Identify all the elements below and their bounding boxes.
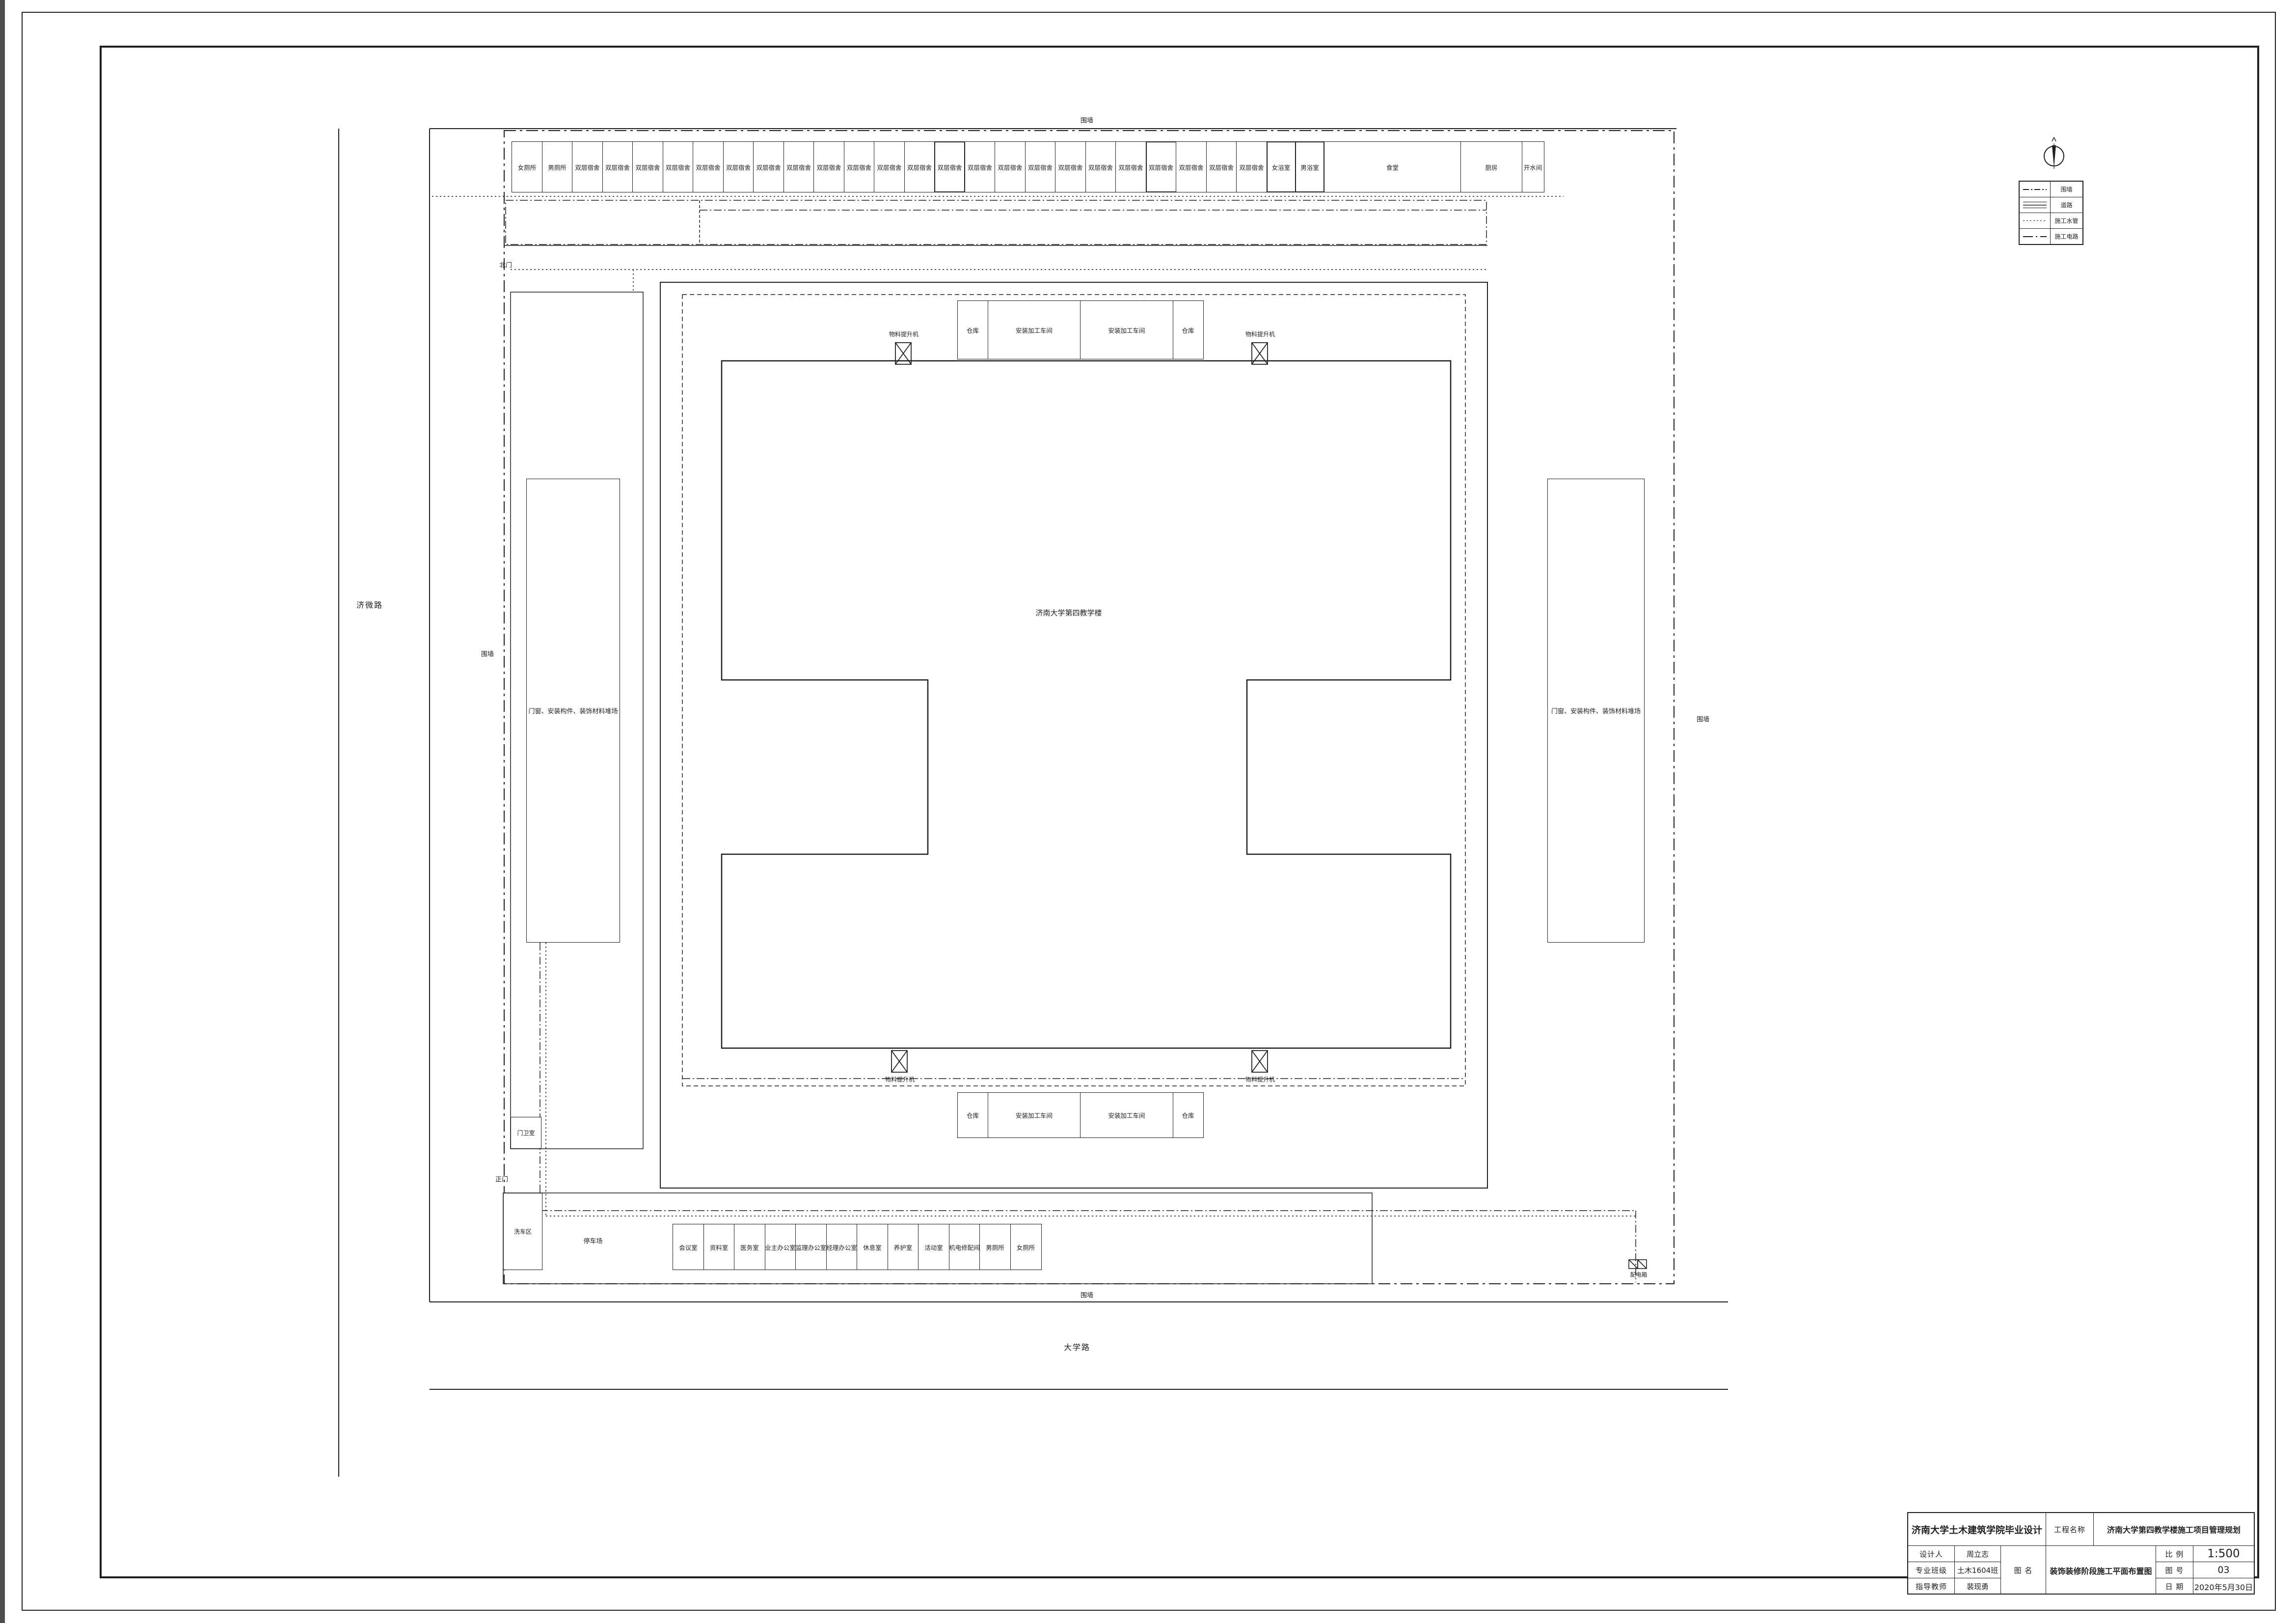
room-box: 双层宿舍 bbox=[1176, 141, 1207, 192]
room-box: 双层宿舍 bbox=[753, 141, 784, 192]
east-storage-yard: 门窗、安装构件、装饰材料堆场 bbox=[1547, 479, 1645, 943]
room-box: 双层宿舍 bbox=[602, 141, 633, 192]
west-road-label: 济微路 bbox=[356, 601, 383, 609]
box-label: 双层宿舍 bbox=[1149, 162, 1173, 172]
legend-dashdot-long-icon bbox=[2020, 229, 2051, 244]
facility-box: 安装加工车间 bbox=[988, 1092, 1081, 1138]
office-row: 会议室资料室医务室业主办公室监理办公室经理办公室休息室养护室活动室机电修配间男厕… bbox=[673, 1224, 1042, 1270]
hoist-label-top-right: 物料提升机 bbox=[1245, 331, 1275, 337]
legend-label: 围墙 bbox=[2051, 182, 2082, 197]
west-storage-yard: 门窗、安装构件、装饰材料堆场 bbox=[526, 479, 620, 943]
box-label: 双层宿舍 bbox=[1179, 162, 1203, 172]
box-label: 双层宿舍 bbox=[696, 162, 720, 172]
hoist-symbol-bottom-right bbox=[1252, 1051, 1268, 1072]
drawing-no-label: 图 号 bbox=[2156, 1562, 2193, 1578]
box-label: 双层宿舍 bbox=[1239, 162, 1264, 172]
room-box: 双层宿舍 bbox=[1025, 141, 1056, 192]
box-label: 双层宿舍 bbox=[1058, 162, 1082, 172]
power-box-label: 配电箱 bbox=[1630, 1272, 1648, 1278]
room-box: 双层宿舍 bbox=[965, 141, 996, 192]
room-box: 双层宿舍 bbox=[1146, 141, 1177, 192]
box-label: 开水间 bbox=[1524, 162, 1542, 172]
car-wash-area: 洗车区 bbox=[503, 1193, 542, 1270]
room-box: 双层宿舍 bbox=[1236, 141, 1267, 192]
drawing-no-value: 03 bbox=[2193, 1562, 2254, 1578]
hoist-symbol-bottom-left bbox=[891, 1051, 907, 1072]
legend-row: 施工水管 bbox=[2020, 213, 2082, 228]
box-label: 仓库 bbox=[967, 325, 979, 335]
room-box: 男浴室 bbox=[1295, 141, 1324, 192]
legend-label: 道路 bbox=[2051, 197, 2082, 213]
north-arrow-icon bbox=[2044, 137, 2064, 169]
title-school: 济南大学土木建筑学院毕业设计 bbox=[1908, 1513, 2046, 1546]
box-label: 女厕所 bbox=[518, 162, 537, 172]
box-label: 双层宿舍 bbox=[1088, 162, 1113, 172]
compound-top-facilities: 仓库安装加工车间安装加工车间仓库 bbox=[957, 300, 1204, 359]
room-box: 双层宿舍 bbox=[874, 141, 905, 192]
room-box: 双层宿舍 bbox=[813, 141, 844, 192]
room-box: 双层宿舍 bbox=[1085, 141, 1116, 192]
box-label: 食堂 bbox=[1386, 162, 1399, 172]
top-lane-outline bbox=[506, 200, 1486, 244]
advisor-value: 裴现勇 bbox=[1955, 1578, 2001, 1595]
hoist-label-bottom-right: 物料提升机 bbox=[1245, 1077, 1275, 1082]
fence-label-east: 围墙 bbox=[1697, 717, 1709, 723]
box-label: 男厕所 bbox=[986, 1243, 1004, 1252]
box-label: 厨房 bbox=[1485, 162, 1497, 172]
date-value: 2020年5月30日 bbox=[2193, 1578, 2254, 1595]
box-label: 男厕所 bbox=[548, 162, 567, 172]
class-label: 专业班级 bbox=[1908, 1562, 1955, 1578]
legend-row: 道路 bbox=[2020, 197, 2082, 213]
office-box: 经理办公室 bbox=[826, 1224, 858, 1270]
box-label: 仓库 bbox=[1182, 325, 1194, 335]
box-label: 会议室 bbox=[679, 1243, 698, 1252]
office-box: 会议室 bbox=[673, 1224, 704, 1270]
room-box: 双层宿舍 bbox=[844, 141, 875, 192]
box-label: 双层宿舍 bbox=[968, 162, 992, 172]
facility-box: 仓库 bbox=[1173, 300, 1204, 359]
compound-outline bbox=[660, 282, 1487, 1188]
office-box: 业主办公室 bbox=[765, 1224, 796, 1270]
power-box-icon bbox=[1629, 1260, 1647, 1269]
legend-dashdot-icon bbox=[2020, 182, 2051, 197]
inner-frame-border bbox=[101, 47, 2258, 1577]
legend-label: 施工水管 bbox=[2051, 213, 2082, 228]
room-box: 女厕所 bbox=[512, 141, 542, 192]
room-box: 双层宿舍 bbox=[934, 141, 965, 192]
drawing-name-label: 图 名 bbox=[2001, 1546, 2046, 1595]
compound-bottom-facilities: 仓库安装加工车间安装加工车间仓库 bbox=[957, 1092, 1204, 1138]
office-box: 资料室 bbox=[703, 1224, 735, 1270]
project-name-label: 工程名称 bbox=[2046, 1513, 2094, 1546]
box-label: 女浴室 bbox=[1272, 162, 1291, 172]
room-box: 双层宿舍 bbox=[572, 141, 603, 192]
box-label: 双层宿舍 bbox=[726, 162, 751, 172]
legend-dotted-icon bbox=[2020, 213, 2051, 228]
box-label: 仓库 bbox=[967, 1110, 979, 1120]
box-label: 双层宿舍 bbox=[847, 162, 871, 172]
office-box: 医务室 bbox=[734, 1224, 765, 1270]
office-box: 机电修配间 bbox=[949, 1224, 980, 1270]
south-road-label: 大学路 bbox=[1064, 1344, 1090, 1352]
box-label: 安装加工车间 bbox=[1016, 325, 1053, 335]
box-label: 经理办公室 bbox=[826, 1243, 857, 1252]
legend-label: 施工电路 bbox=[2051, 229, 2082, 244]
scale-label: 比 例 bbox=[2156, 1546, 2193, 1562]
box-label: 双层宿舍 bbox=[1209, 162, 1234, 172]
hoist-label-top-left: 物料提升机 bbox=[889, 331, 918, 337]
site-plan-canvas: 围墙 围墙 围墙 围墙 济微路 大学路 北门 正门 女厕所男厕所双层宿舍双层宿舍… bbox=[0, 0, 2296, 1623]
guard-room: 门卫室 bbox=[511, 1117, 541, 1149]
room-box: 厨房 bbox=[1460, 141, 1522, 192]
office-box: 休息室 bbox=[857, 1224, 888, 1270]
facility-box: 安装加工车间 bbox=[1080, 300, 1173, 359]
room-box: 双层宿舍 bbox=[783, 141, 814, 192]
box-label: 双层宿舍 bbox=[907, 162, 932, 172]
legend-road-icon bbox=[2020, 197, 2051, 213]
north-gate-label: 北门 bbox=[499, 263, 512, 269]
facility-box: 仓库 bbox=[1173, 1092, 1204, 1138]
compound-inner-dashed bbox=[682, 295, 1465, 1086]
east-storage-label: 门窗、安装构件、装饰材料堆场 bbox=[1551, 706, 1641, 715]
project-name-value: 济南大学第四教学楼施工项目管理规划 bbox=[2094, 1513, 2254, 1546]
office-box: 女厕所 bbox=[1010, 1224, 1042, 1270]
class-value: 土木1604班 bbox=[1955, 1562, 2001, 1578]
legend-row: 围墙 bbox=[2020, 182, 2082, 197]
room-box: 双层宿舍 bbox=[995, 141, 1026, 192]
main-gate-label: 正门 bbox=[495, 1177, 508, 1183]
room-box: 双层宿舍 bbox=[904, 141, 935, 192]
fence-label-west: 围墙 bbox=[481, 651, 494, 658]
outer-page-border bbox=[22, 12, 2275, 1610]
box-label: 双层宿舍 bbox=[756, 162, 781, 172]
room-box: 男厕所 bbox=[542, 141, 573, 192]
parking-label: 停车场 bbox=[583, 1239, 602, 1245]
fence-label-north: 围墙 bbox=[1080, 118, 1093, 124]
office-box: 活动室 bbox=[918, 1224, 949, 1270]
box-label: 双层宿舍 bbox=[1028, 162, 1053, 172]
building-outline bbox=[722, 361, 1451, 1048]
west-storage-label: 门窗、安装构件、装饰材料堆场 bbox=[528, 706, 618, 715]
room-box: 双层宿舍 bbox=[632, 141, 663, 192]
office-box: 男厕所 bbox=[979, 1224, 1011, 1270]
box-label: 休息室 bbox=[863, 1243, 882, 1252]
office-box: 监理办公室 bbox=[795, 1224, 827, 1270]
box-label: 双层宿舍 bbox=[877, 162, 901, 172]
box-label: 安装加工车间 bbox=[1108, 325, 1145, 335]
designer-label: 设计人 bbox=[1908, 1546, 1955, 1562]
drawing-linework bbox=[0, 0, 2296, 1623]
office-box: 养护室 bbox=[888, 1224, 919, 1270]
box-label: 活动室 bbox=[924, 1243, 943, 1252]
box-label: 双层宿舍 bbox=[937, 162, 962, 172]
box-label: 资料室 bbox=[710, 1243, 729, 1252]
room-box: 食堂 bbox=[1324, 141, 1461, 192]
fence-label-south: 围墙 bbox=[1080, 1293, 1093, 1299]
box-label: 双层宿舍 bbox=[575, 162, 599, 172]
box-label: 双层宿舍 bbox=[786, 162, 811, 172]
box-label: 双层宿舍 bbox=[635, 162, 660, 172]
box-label: 双层宿舍 bbox=[666, 162, 690, 172]
box-label: 双层宿舍 bbox=[1118, 162, 1143, 172]
box-label: 仓库 bbox=[1182, 1110, 1194, 1120]
room-box: 开水间 bbox=[1522, 141, 1544, 192]
room-box: 女浴室 bbox=[1267, 141, 1296, 192]
facility-box: 仓库 bbox=[957, 1092, 988, 1138]
car-wash-label: 洗车区 bbox=[514, 1227, 532, 1236]
legend-row: 施工电路 bbox=[2020, 228, 2082, 244]
guard-room-label: 门卫室 bbox=[517, 1129, 535, 1137]
room-box: 双层宿舍 bbox=[693, 141, 724, 192]
box-label: 业主办公室 bbox=[765, 1243, 796, 1252]
hoist-label-bottom-left: 物料提升机 bbox=[885, 1077, 915, 1082]
facility-box: 仓库 bbox=[957, 300, 988, 359]
box-label: 双层宿舍 bbox=[605, 162, 630, 172]
room-box: 双层宿舍 bbox=[663, 141, 694, 192]
legend-table: 围墙道路施工水管施工电路 bbox=[2019, 181, 2083, 245]
facility-box: 安装加工车间 bbox=[988, 300, 1081, 359]
facility-box: 安装加工车间 bbox=[1080, 1092, 1173, 1138]
box-label: 双层宿舍 bbox=[998, 162, 1022, 172]
box-label: 监理办公室 bbox=[796, 1243, 827, 1252]
advisor-label: 指导教师 bbox=[1908, 1578, 1955, 1595]
box-label: 安装加工车间 bbox=[1108, 1110, 1145, 1120]
title-block: 济南大学土木建筑学院毕业设计 工程名称 济南大学第四教学楼施工项目管理规划 设计… bbox=[1907, 1512, 2255, 1595]
box-label: 女厕所 bbox=[1017, 1243, 1035, 1252]
box-label: 男浴室 bbox=[1300, 162, 1319, 172]
box-label: 机电修配间 bbox=[949, 1243, 980, 1252]
room-box: 双层宿舍 bbox=[1115, 141, 1146, 192]
building-label: 济南大学第四教学楼 bbox=[1035, 610, 1102, 617]
box-label: 养护室 bbox=[894, 1243, 913, 1252]
box-label: 双层宿舍 bbox=[816, 162, 841, 172]
box-label: 安装加工车间 bbox=[1016, 1110, 1053, 1120]
top-room-row: 女厕所男厕所双层宿舍双层宿舍双层宿舍双层宿舍双层宿舍双层宿舍双层宿舍双层宿舍双层… bbox=[512, 141, 1544, 192]
room-box: 双层宿舍 bbox=[723, 141, 754, 192]
scale-value: 1:500 bbox=[2193, 1546, 2254, 1562]
designer-value: 周立志 bbox=[1955, 1546, 2001, 1562]
date-label: 日 期 bbox=[2156, 1578, 2193, 1595]
room-box: 双层宿舍 bbox=[1055, 141, 1086, 192]
room-box: 双层宿舍 bbox=[1206, 141, 1237, 192]
drawing-name-value: 装饰装修阶段施工平面布置图 bbox=[2046, 1546, 2156, 1595]
box-label: 医务室 bbox=[740, 1243, 759, 1252]
